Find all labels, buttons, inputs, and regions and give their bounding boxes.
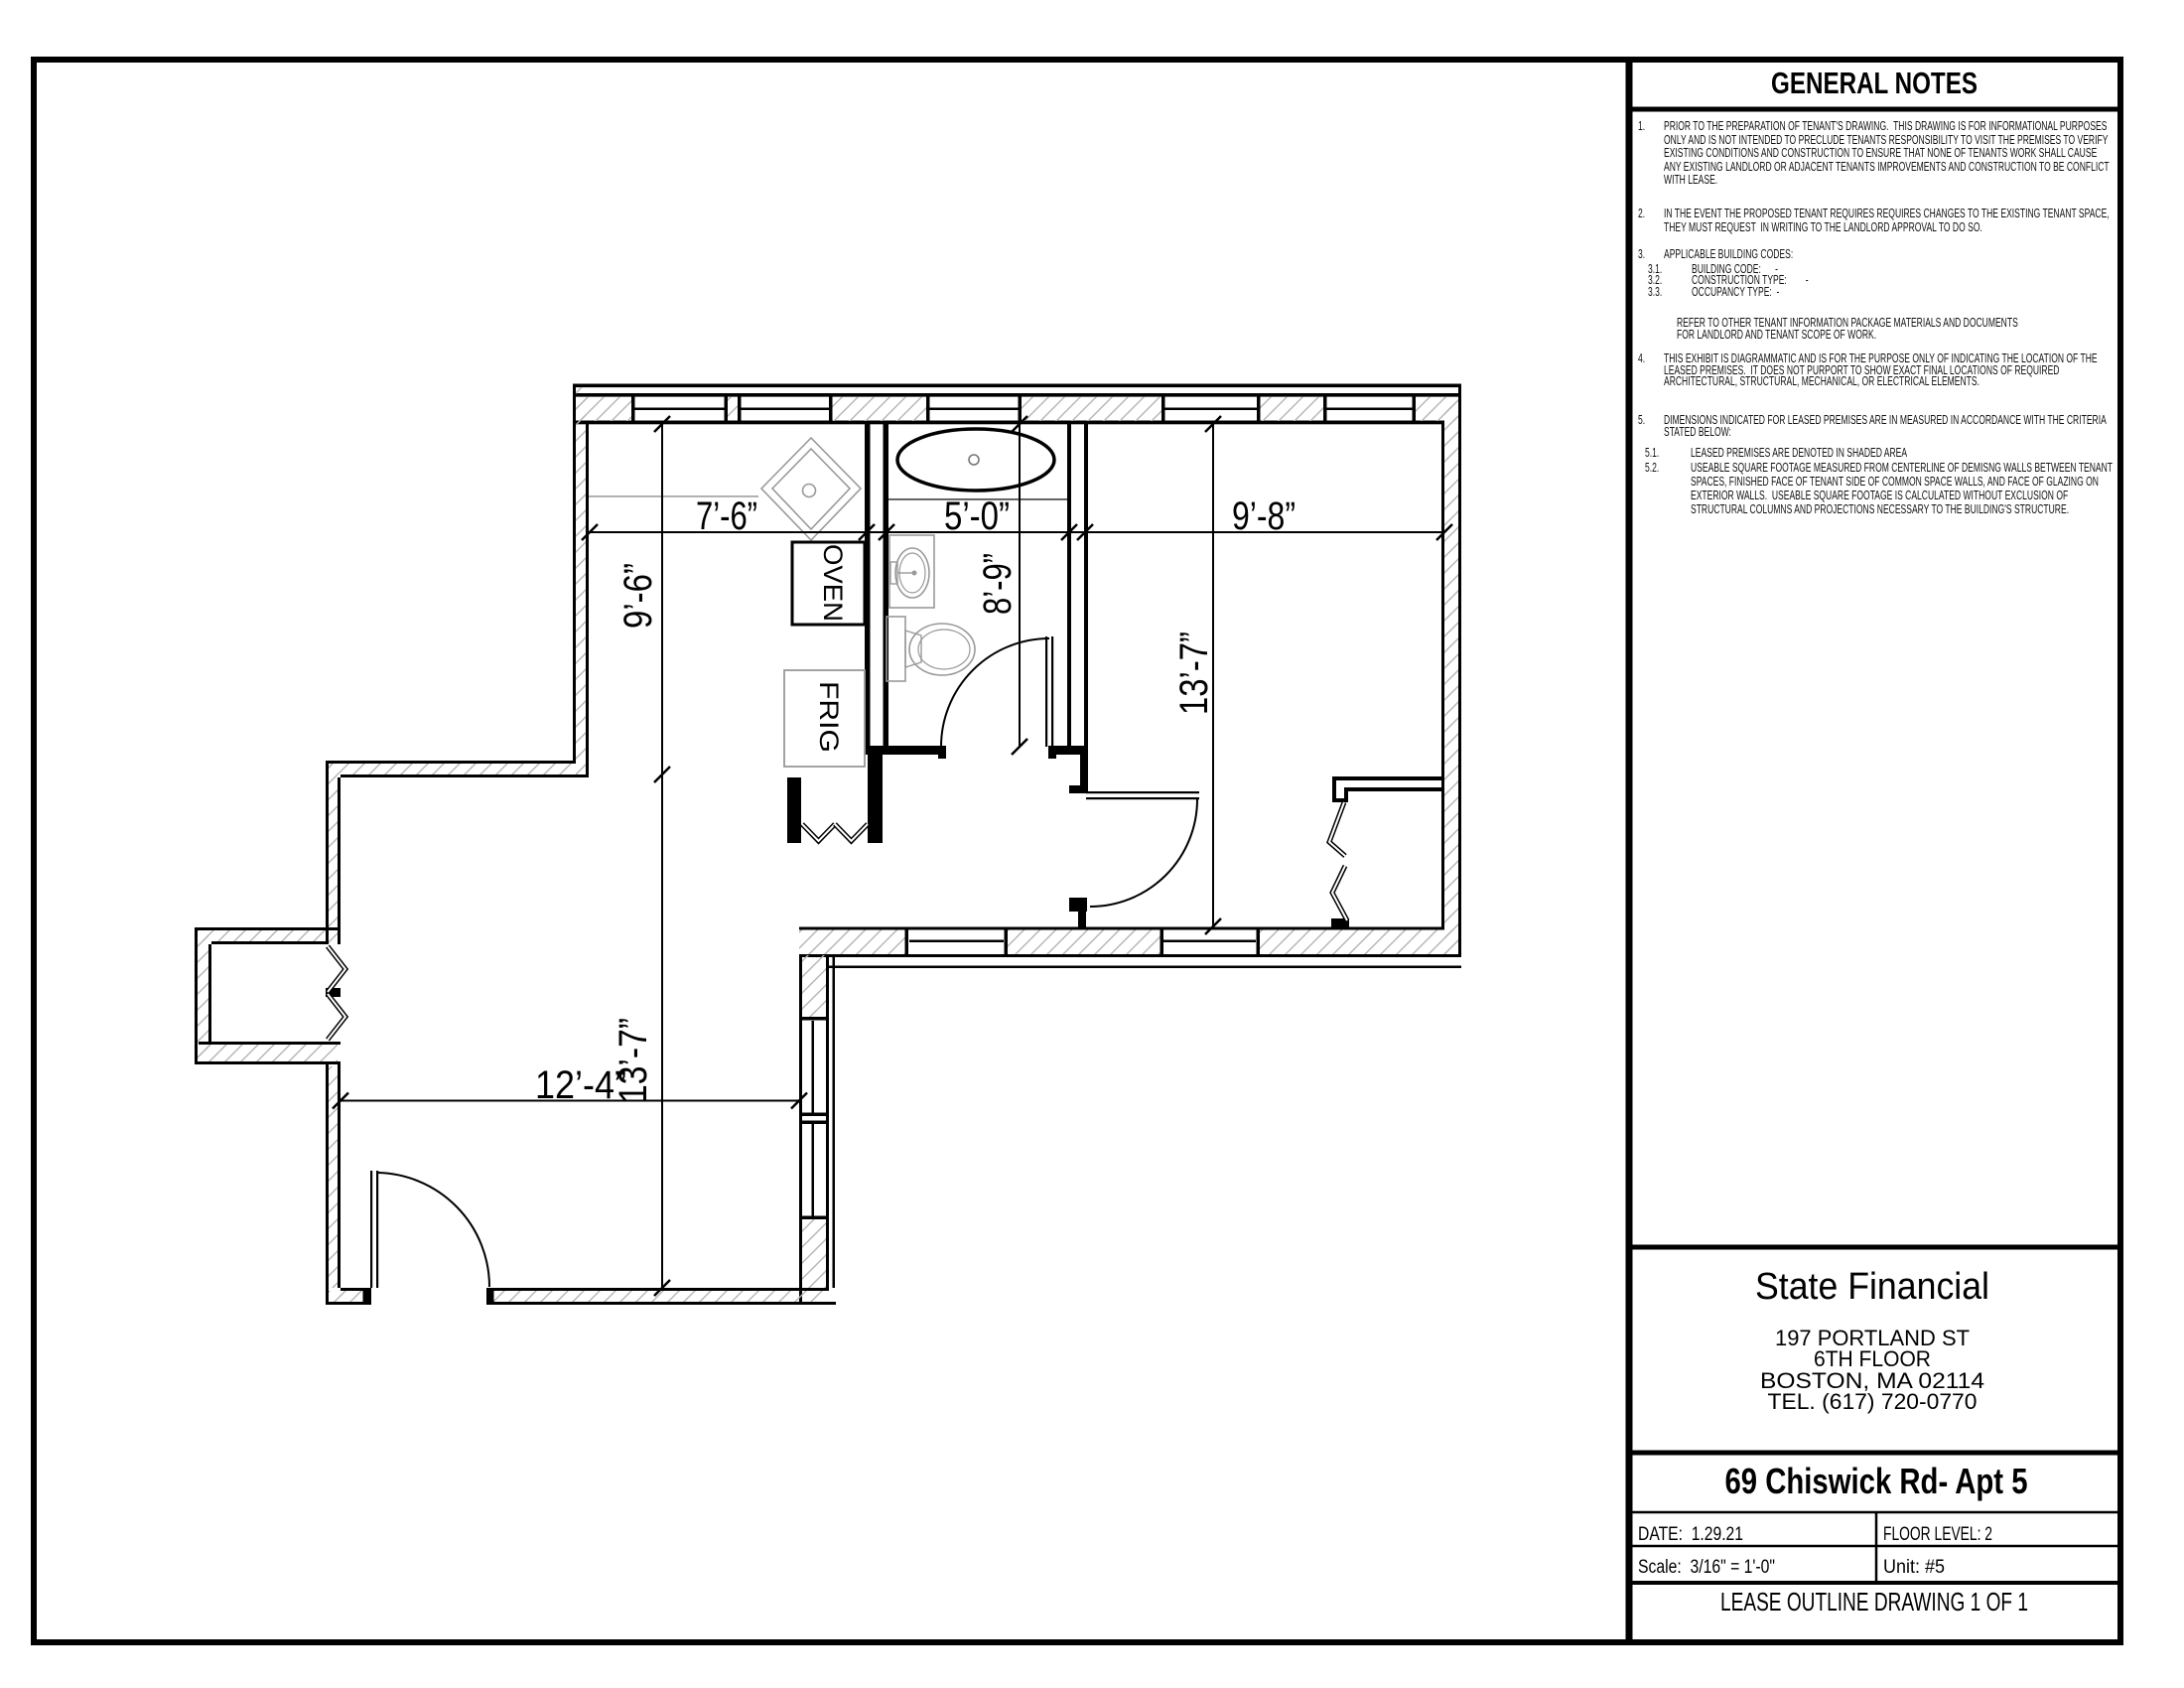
svg-text:Unit: #5: Unit: #5: [1883, 1557, 1945, 1578]
svg-text:7’-6”: 7’-6”: [696, 494, 757, 538]
svg-text:Scale: 3/16" = 1'-0": Scale: 3/16" = 1'-0": [1638, 1557, 1775, 1578]
svg-text:OVEN: OVEN: [818, 544, 848, 622]
svg-text:5’-0”: 5’-0”: [944, 494, 1010, 538]
svg-text:69 Chiswick Rd- Apt 5: 69 Chiswick Rd- Apt 5: [1725, 1461, 2028, 1501]
svg-text:State Financial: State Financial: [1755, 1266, 1989, 1308]
svg-text:13’-7”: 13’-7”: [1172, 632, 1216, 715]
svg-text:8’-9”: 8’-9”: [976, 553, 1020, 615]
svg-text:9’-8”: 9’-8”: [1232, 494, 1296, 538]
svg-text:GENERAL NOTES: GENERAL NOTES: [1771, 66, 1978, 100]
svg-text:12’-4”: 12’-4”: [535, 1063, 626, 1107]
svg-text:DATE: 1.29.21: DATE: 1.29.21: [1638, 1524, 1743, 1545]
svg-text:9’-6”: 9’-6”: [616, 563, 660, 629]
svg-text:LEASE OUTLINE DRAWING 1 OF 1: LEASE OUTLINE DRAWING 1 OF 1: [1720, 1587, 2028, 1617]
svg-text:FLOOR LEVEL: 2: FLOOR LEVEL: 2: [1883, 1524, 1992, 1545]
svg-text:TEL. (617) 720-0770: TEL. (617) 720-0770: [1768, 1389, 1978, 1414]
svg-text:FRIG: FRIG: [814, 681, 844, 753]
